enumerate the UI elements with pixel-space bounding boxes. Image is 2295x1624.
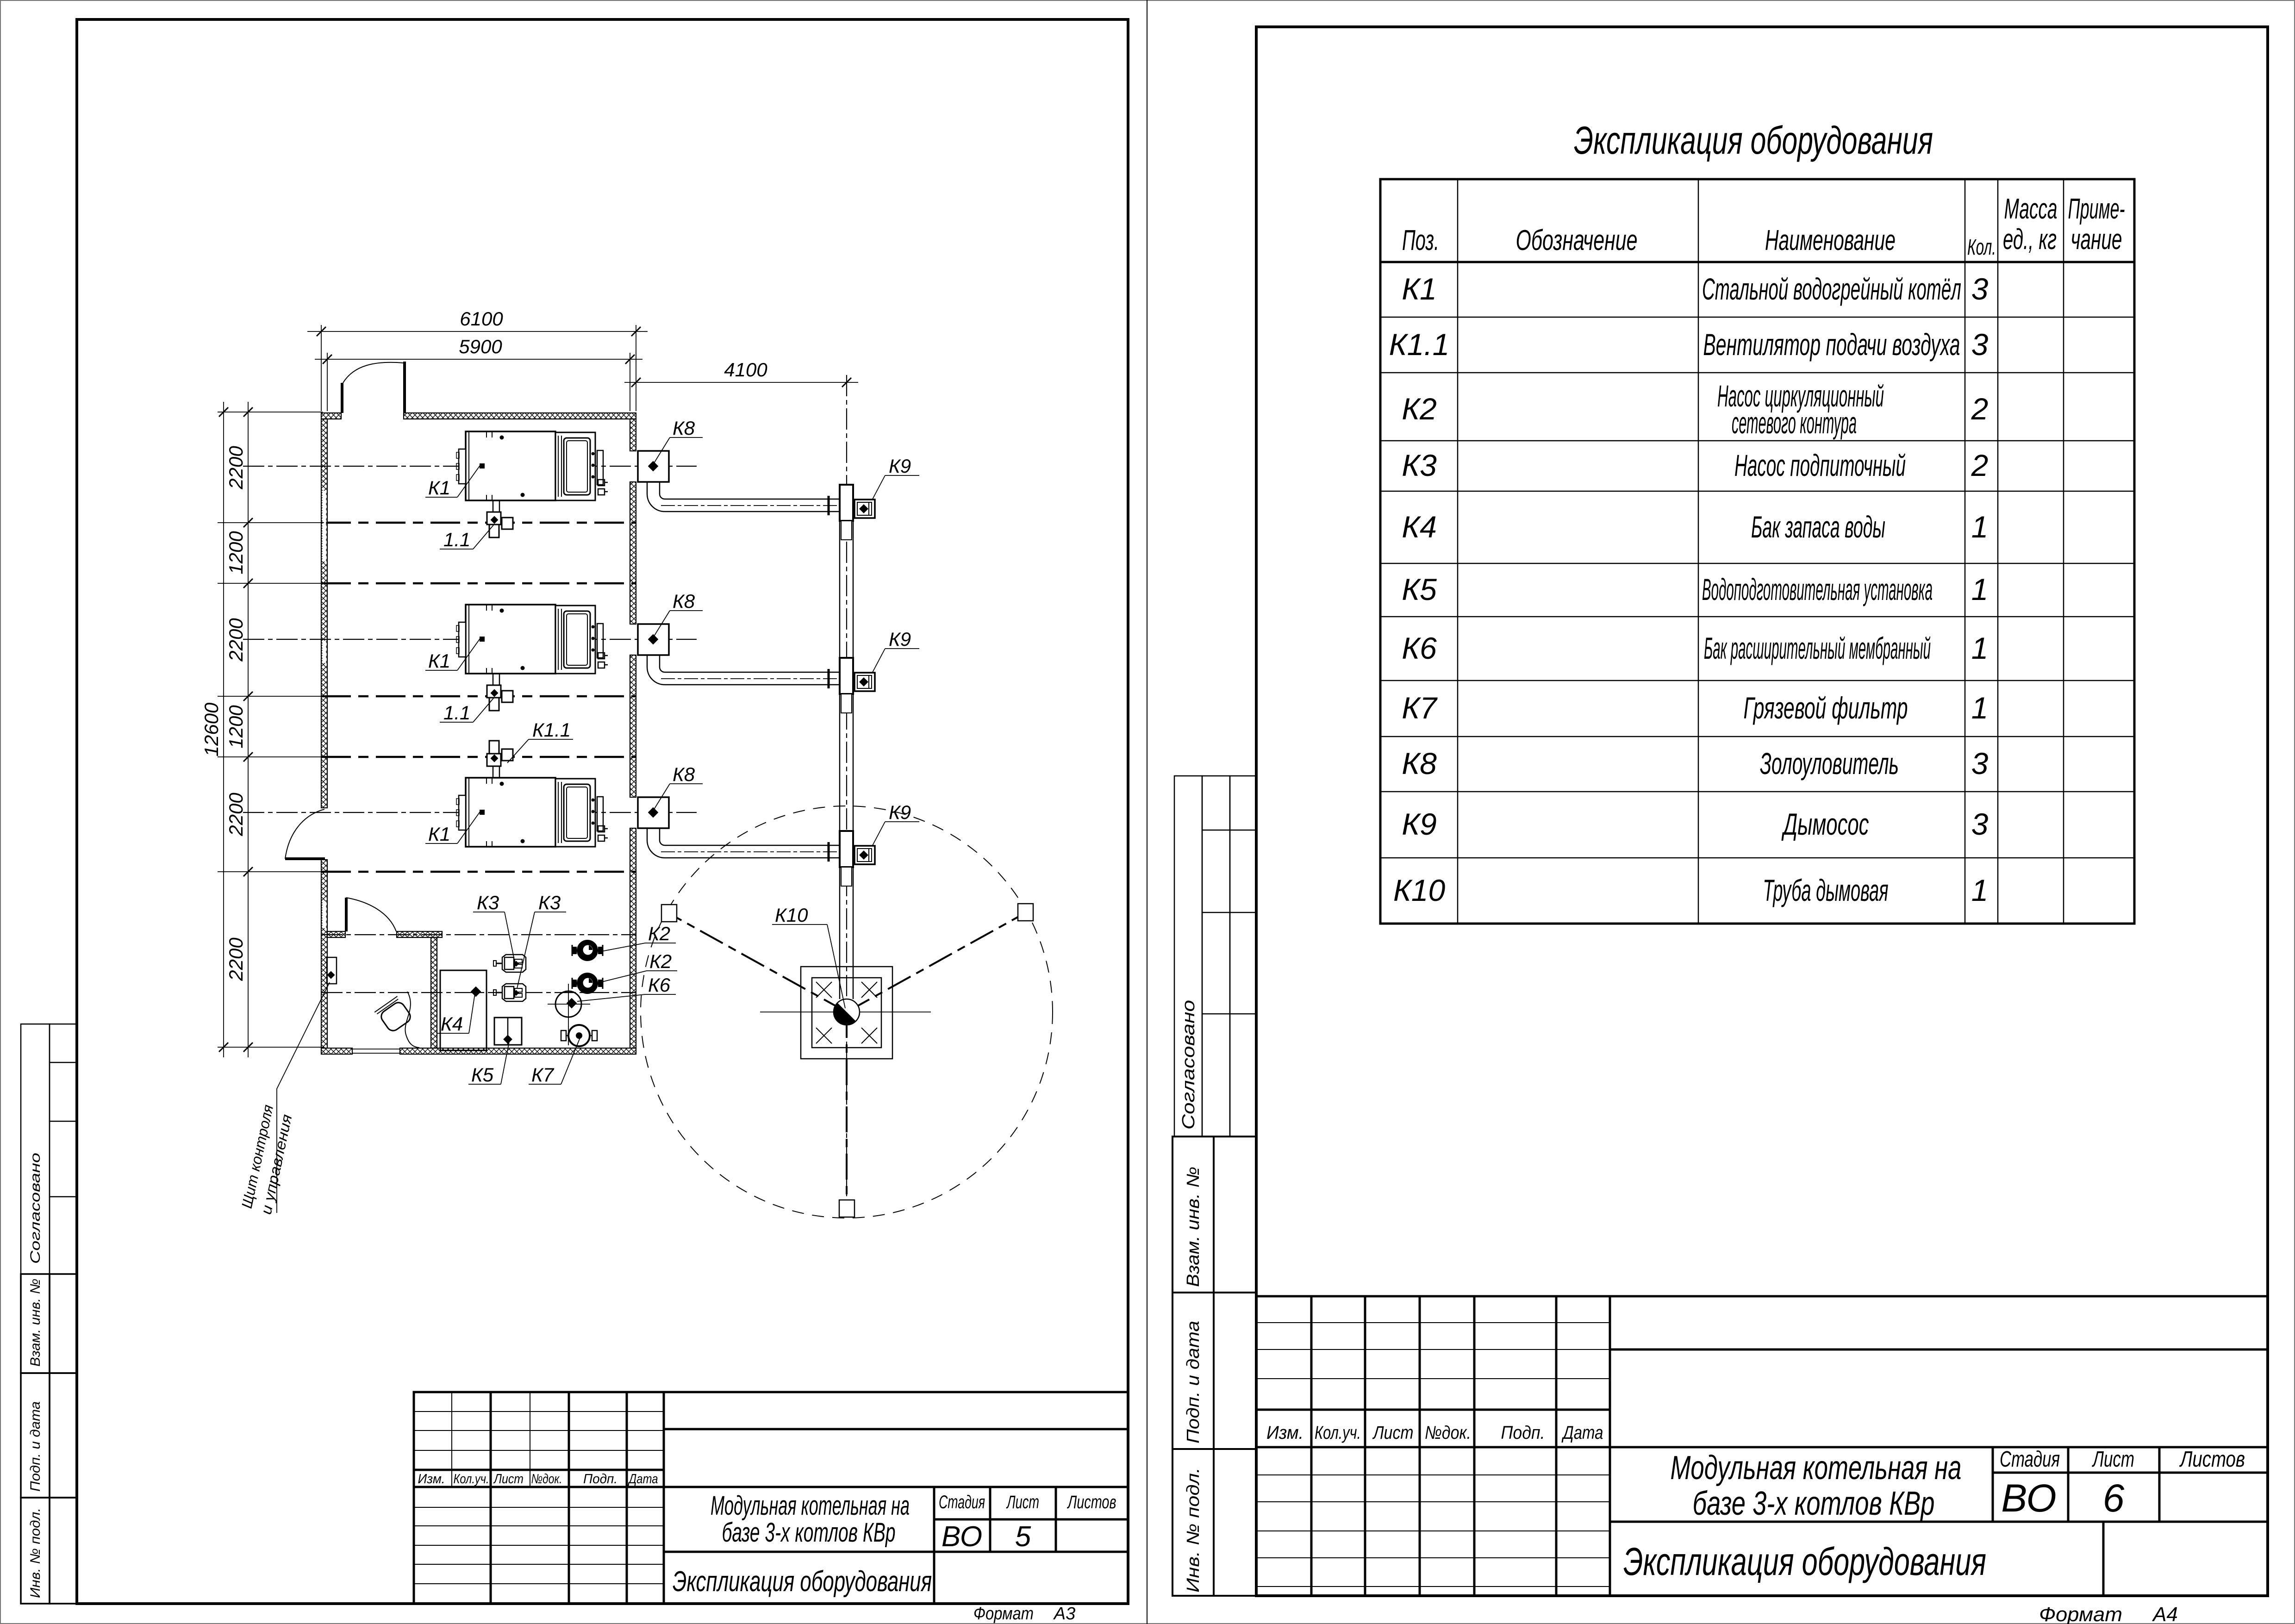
svg-text:1: 1 [1971,873,1989,907]
svg-text:Кол.уч.: Кол.уч. [1315,1423,1361,1443]
svg-text:К1: К1 [428,477,450,499]
svg-text:№док.: №док. [1425,1423,1471,1443]
svg-text:Насос подпиточный: Насос подпиточный [1734,448,1906,482]
svg-text:К4: К4 [1402,510,1437,544]
svg-text:К8: К8 [1402,746,1437,781]
svg-text:Дата: Дата [1561,1423,1603,1443]
svg-text:Лист: Лист [1372,1423,1414,1443]
svg-text:Модульная котельная на: Модульная котельная на [1671,1449,1962,1487]
svg-text:Подп.: Подп. [583,1472,617,1487]
svg-text:Подп. и дата: Подп. и дата [28,1401,43,1492]
svg-text:3: 3 [1971,327,1989,362]
svg-text:Согласовано: Согласовано [1179,1000,1198,1130]
svg-text:К5: К5 [471,1064,494,1086]
svg-text:К10: К10 [775,904,808,926]
svg-text:Грязевой фильтр: Грязевой фильтр [1744,691,1908,725]
svg-text:1200: 1200 [225,531,247,575]
svg-text:К9: К9 [1402,807,1437,841]
svg-text:2: 2 [1971,392,1989,426]
svg-text:К7: К7 [1402,691,1438,725]
svg-text:2200: 2200 [225,937,247,981]
svg-text:К9: К9 [889,455,911,477]
svg-text:Изм.: Изм. [418,1472,445,1487]
svg-text:Экспликация оборудования: Экспликация оборудования [673,1566,932,1598]
svg-text:К1.1: К1.1 [1389,327,1450,362]
svg-text:Согласовано: Согласовано [28,1153,43,1264]
svg-text:Бак запаса воды: Бак запаса воды [1751,510,1885,544]
svg-text:К3: К3 [477,892,499,913]
svg-text:К8: К8 [673,417,695,439]
svg-text:А3: А3 [1053,1604,1075,1624]
svg-text:базе 3-х котлов КВр: базе 3-х котлов КВр [1693,1485,1935,1522]
svg-text:Изм.: Изм. [1266,1423,1303,1443]
svg-text:1: 1 [1971,510,1989,544]
svg-text:Лист: Лист [1006,1492,1039,1512]
svg-text:3: 3 [1971,272,1989,306]
svg-text:ВО: ВО [2001,1476,2057,1520]
svg-text:3: 3 [1971,746,1989,781]
svg-text:Водоподготовительная установка: Водоподготовительная установка [1702,572,1933,606]
svg-text:6: 6 [2103,1476,2125,1520]
svg-text:Инв. № подл.: Инв. № подл. [28,1508,43,1598]
svg-text:Кол.: Кол. [1967,235,1996,260]
svg-text:ед., кг: ед., кг [2003,224,2057,256]
svg-text:К2: К2 [1402,392,1437,426]
svg-text:Экспликация оборудования: Экспликация оборудования [1574,119,1933,162]
svg-text:1.1: 1.1 [443,702,470,724]
svg-text:Взам. инв. №: Взам. инв. № [1184,1167,1203,1287]
svg-text:К1: К1 [428,650,450,672]
svg-text:Вентилятор подачи воздуха: Вентилятор подачи воздуха [1703,327,1960,362]
svg-text:Лист: Лист [2092,1447,2134,1472]
svg-text:К8: К8 [673,763,695,785]
svg-text:Инв. № подл.: Инв. № подл. [1184,1468,1203,1593]
svg-text:сетевого контура: сетевого контура [1732,406,1857,440]
svg-text:5: 5 [1015,1521,1031,1553]
svg-text:Листов: Листов [2179,1447,2245,1472]
svg-text:К4: К4 [441,1013,463,1035]
svg-text:Стадия: Стадия [2000,1447,2060,1472]
svg-text:Наименование: Наименование [1765,225,1896,256]
svg-text:Взам. инв. №: Взам. инв. № [28,1279,43,1367]
svg-text:2200: 2200 [225,618,247,662]
svg-text:К9: К9 [889,801,911,823]
svg-text:К9: К9 [889,628,911,650]
svg-text:2200: 2200 [225,446,247,490]
svg-text:5900: 5900 [459,336,502,357]
svg-text:Масса: Масса [2004,193,2058,225]
svg-text:Подп. и дата: Подп. и дата [1184,1321,1203,1443]
svg-text:чание: чание [2071,224,2122,256]
svg-text:К5: К5 [1402,572,1437,606]
svg-text:Модульная котельная на: Модульная котельная на [711,1491,910,1521]
svg-text:Листов: Листов [1066,1492,1116,1512]
svg-text:Дата: Дата [628,1472,658,1487]
svg-text:Стадия: Стадия [939,1492,985,1512]
svg-text:К3: К3 [1402,448,1437,482]
svg-text:№док.: №док. [531,1472,562,1487]
svg-text:Лист: Лист [493,1472,524,1487]
svg-text:К10: К10 [1393,873,1446,907]
svg-text:1200: 1200 [225,705,247,749]
svg-text:Экспликация оборудования: Экспликация оборудования [1623,1540,1986,1583]
svg-text:Стальной водогрейный котёл: Стальной водогрейный котёл [1702,272,1961,306]
svg-text:Формат: Формат [2039,1603,2122,1624]
svg-text:Поз.: Поз. [1402,225,1439,256]
svg-text:К3: К3 [538,892,561,913]
svg-text:К2: К2 [648,923,670,944]
svg-text:1.1: 1.1 [443,529,470,550]
svg-text:К1: К1 [1402,272,1437,306]
svg-text:1: 1 [1971,572,1989,606]
svg-text:2200: 2200 [225,793,247,837]
svg-text:базе 3-х котлов КВр: базе 3-х котлов КВр [722,1518,896,1548]
svg-text:1: 1 [1971,631,1989,665]
svg-text:4100: 4100 [724,359,767,381]
svg-text:Приме-: Приме- [2068,193,2125,225]
svg-text:К1: К1 [428,823,450,845]
svg-text:К6: К6 [1402,631,1437,665]
svg-text:12600: 12600 [200,702,222,756]
svg-text:А4: А4 [2152,1603,2178,1624]
svg-text:1: 1 [1971,691,1989,725]
svg-text:К2: К2 [649,950,672,972]
svg-text:6100: 6100 [460,308,503,330]
svg-text:К7: К7 [531,1064,555,1086]
svg-text:Кол.уч.: Кол.уч. [454,1472,489,1487]
svg-text:ВО: ВО [942,1521,982,1553]
svg-text:Бак расширительный мембранный: Бак расширительный мембранный [1704,631,1931,665]
svg-text:К8: К8 [673,590,695,612]
svg-text:Золоуловитель: Золоуловитель [1760,746,1899,781]
svg-text:Подп.: Подп. [1501,1423,1545,1443]
svg-text:Обозначение: Обозначение [1516,225,1638,256]
svg-text:2: 2 [1971,448,1989,482]
svg-text:К6: К6 [648,974,671,996]
svg-text:Дымосос: Дымосос [1781,807,1869,841]
svg-text:Формат: Формат [973,1604,1034,1624]
svg-text:К1.1: К1.1 [532,719,571,741]
svg-text:3: 3 [1971,807,1989,841]
svg-text:Труба дымовая: Труба дымовая [1763,873,1889,907]
